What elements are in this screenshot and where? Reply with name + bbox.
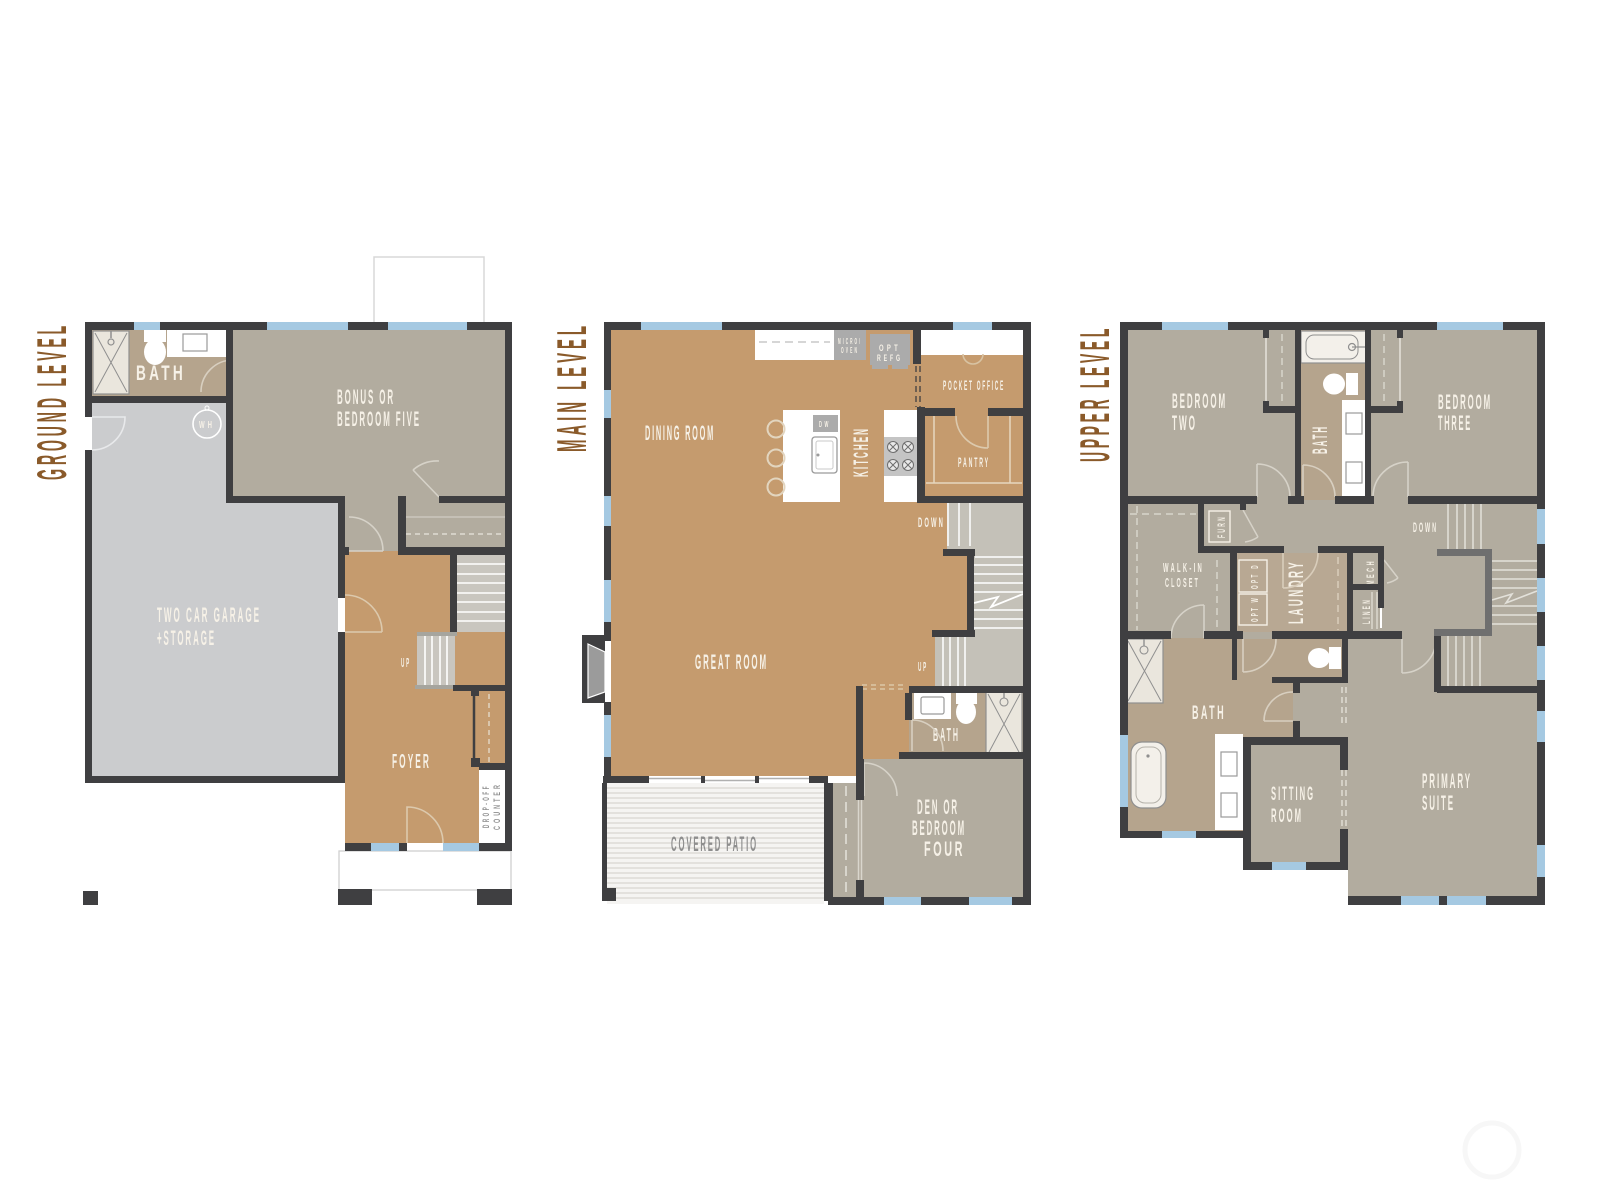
svg-text:BEDROOM: BEDROOM bbox=[912, 817, 966, 840]
svg-text:COVERED PATIO: COVERED PATIO bbox=[671, 833, 758, 856]
svg-text:WALK-IN: WALK-IN bbox=[1163, 560, 1204, 575]
svg-text:MAIN LEVEL: MAIN LEVEL bbox=[548, 322, 595, 452]
svg-text:TWO: TWO bbox=[1172, 412, 1197, 435]
svg-text:COUNTER: COUNTER bbox=[492, 782, 502, 830]
svg-text:FURN: FURN bbox=[1216, 515, 1228, 538]
svg-text:+STORAGE: +STORAGE bbox=[157, 627, 216, 650]
svg-text:DW: DW bbox=[819, 420, 831, 429]
svg-text:UP: UP bbox=[401, 655, 411, 670]
svg-text:BATH: BATH bbox=[136, 362, 186, 385]
svg-text:OPT: OPT bbox=[879, 343, 901, 353]
svg-text:BATH: BATH bbox=[933, 725, 960, 745]
svg-text:BEDROOM FIVE: BEDROOM FIVE bbox=[337, 408, 421, 431]
svg-text:MECH: MECH bbox=[1365, 559, 1377, 585]
svg-text:BATH: BATH bbox=[1309, 425, 1332, 454]
svg-text:UP: UP bbox=[918, 659, 928, 674]
svg-text:OPT W: OPT W bbox=[1250, 596, 1261, 622]
svg-text:GROUND LEVEL: GROUND LEVEL bbox=[28, 322, 75, 480]
svg-text:FOUR: FOUR bbox=[924, 838, 965, 861]
svg-text:REFG: REFG bbox=[877, 353, 903, 363]
svg-text:FOYER: FOYER bbox=[392, 751, 431, 773]
svg-text:DEN OR: DEN OR bbox=[917, 796, 959, 819]
svg-text:DROP-OFF: DROP-OFF bbox=[481, 784, 491, 828]
svg-text:THREE: THREE bbox=[1438, 412, 1472, 435]
svg-text:GREAT ROOM: GREAT ROOM bbox=[695, 651, 768, 674]
svg-text:PANTRY: PANTRY bbox=[958, 454, 990, 470]
svg-text:MICRO/: MICRO/ bbox=[838, 337, 862, 346]
svg-text:DINING ROOM: DINING ROOM bbox=[645, 422, 715, 445]
svg-text:OVEN: OVEN bbox=[841, 346, 859, 355]
svg-text:OPT D: OPT D bbox=[1250, 563, 1261, 589]
svg-text:BATH: BATH bbox=[1192, 703, 1226, 724]
svg-text:SUITE: SUITE bbox=[1422, 792, 1455, 815]
svg-text:PRIMARY: PRIMARY bbox=[1422, 770, 1472, 793]
svg-text:BEDROOM: BEDROOM bbox=[1438, 391, 1492, 414]
svg-text:KITCHEN: KITCHEN bbox=[850, 427, 873, 477]
svg-text:TWO CAR GARAGE: TWO CAR GARAGE bbox=[157, 604, 261, 627]
svg-text:LAUNDRY: LAUNDRY bbox=[1285, 560, 1308, 624]
svg-text:DOWN: DOWN bbox=[918, 514, 945, 530]
svg-text:WH: WH bbox=[199, 420, 215, 431]
svg-text:BEDROOM: BEDROOM bbox=[1172, 390, 1227, 413]
svg-text:UPPER LEVEL: UPPER LEVEL bbox=[1071, 325, 1118, 462]
svg-text:CLOSET: CLOSET bbox=[1165, 575, 1200, 590]
svg-text:POCKET OFFICE: POCKET OFFICE bbox=[943, 377, 1005, 393]
svg-text:BONUS OR: BONUS OR bbox=[337, 386, 395, 409]
svg-text:DOWN: DOWN bbox=[1413, 519, 1438, 535]
svg-text:SITTING: SITTING bbox=[1271, 784, 1315, 805]
svg-text:ROOM: ROOM bbox=[1271, 806, 1303, 827]
svg-text:LINEN: LINEN bbox=[1361, 598, 1373, 624]
